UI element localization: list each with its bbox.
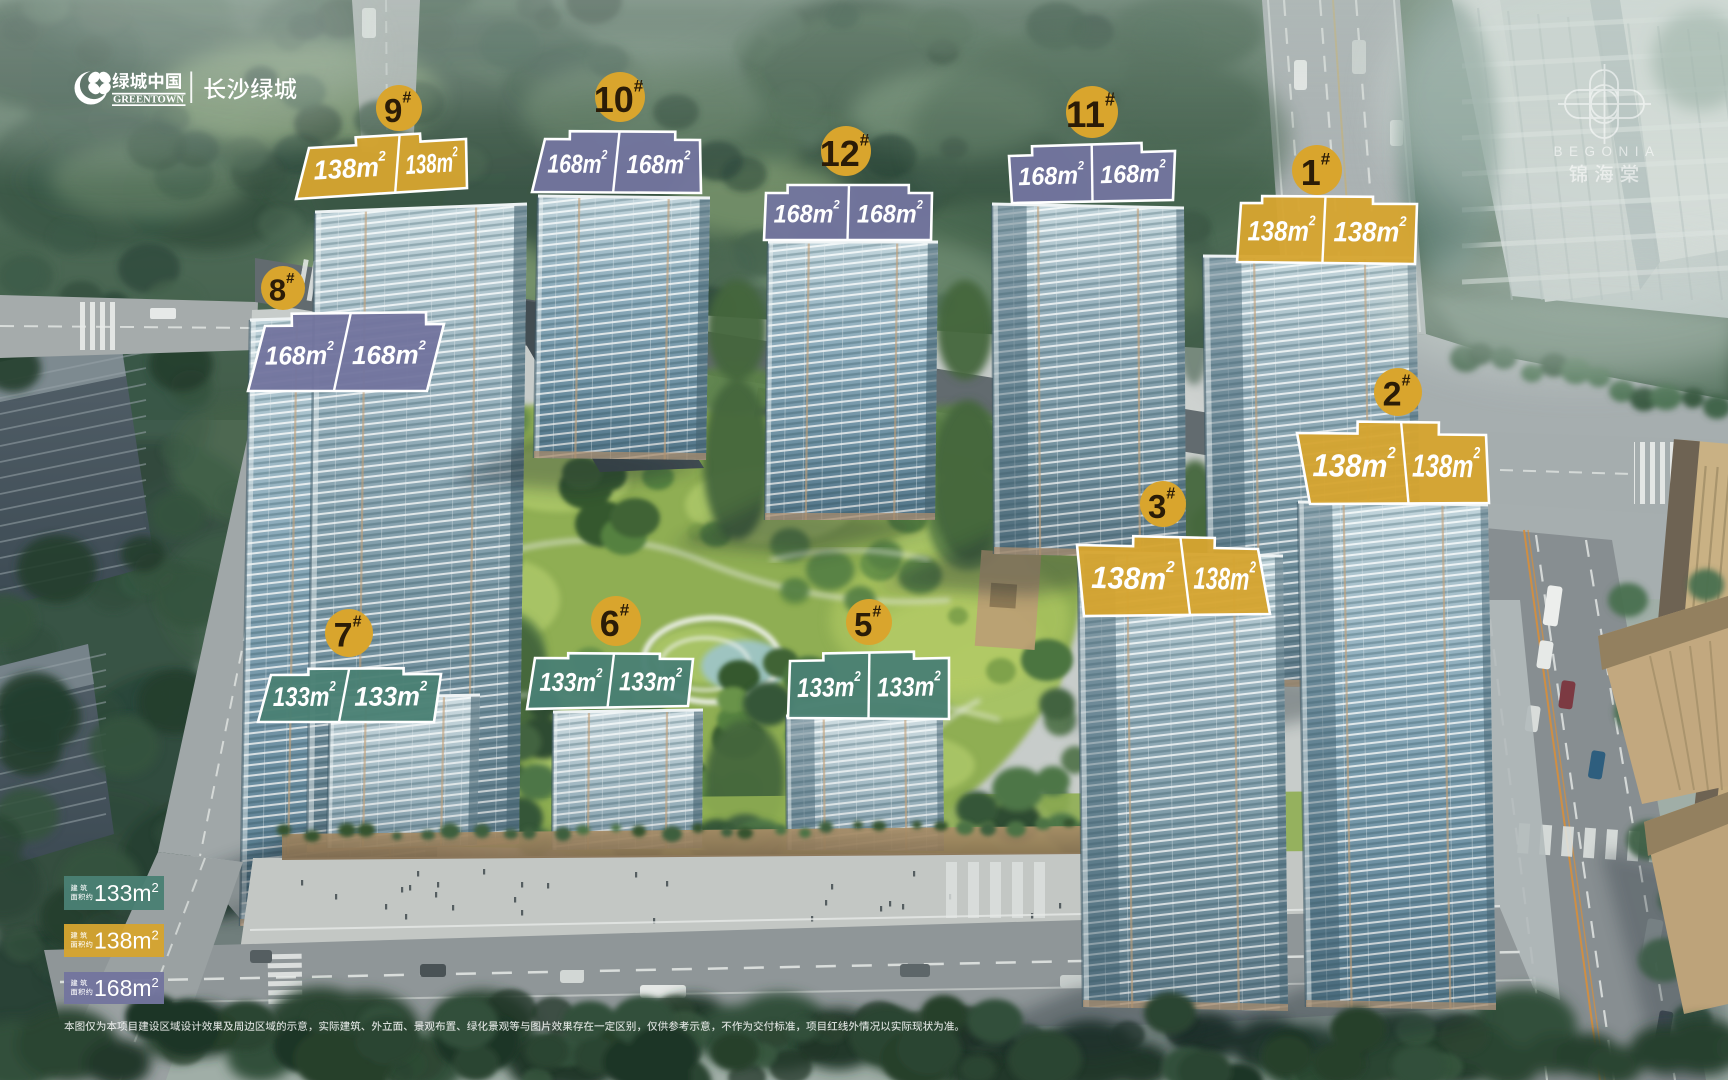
svg-text:168m2: 168m2 (94, 975, 159, 1001)
svg-text:133m2: 133m2 (273, 678, 336, 712)
svg-text:138m2: 138m2 (94, 928, 159, 954)
svg-text:138m2: 138m2 (1333, 213, 1406, 248)
svg-text:133m2: 133m2 (94, 880, 159, 906)
svg-text:133m2: 133m2 (619, 664, 683, 697)
svg-text:168m2: 168m2 (352, 337, 427, 370)
svg-text:133m2: 133m2 (354, 677, 427, 711)
svg-text:138m2: 138m2 (1312, 444, 1395, 484)
svg-text:133m2: 133m2 (539, 664, 603, 697)
svg-text:168m2: 168m2 (265, 337, 335, 370)
svg-text:168m2: 168m2 (1100, 156, 1167, 189)
svg-text:138m2: 138m2 (1412, 444, 1480, 484)
svg-text:168m2: 168m2 (857, 198, 923, 229)
svg-text:168m2: 168m2 (547, 146, 608, 179)
svg-text:133m2: 133m2 (797, 668, 862, 703)
svg-text:168m2: 168m2 (1018, 158, 1085, 191)
svg-text:138m2: 138m2 (1091, 557, 1175, 597)
svg-text:138m2: 138m2 (1193, 558, 1256, 597)
svg-text:168m2: 168m2 (626, 146, 691, 179)
svg-text:GREENTOWN: GREENTOWN (113, 95, 185, 106)
svg-text:138m2: 138m2 (1247, 212, 1315, 247)
svg-text:BEGONIA: BEGONIA (1553, 144, 1660, 159)
svg-text:168m2: 168m2 (774, 198, 840, 229)
svg-text:133m2: 133m2 (877, 667, 942, 702)
